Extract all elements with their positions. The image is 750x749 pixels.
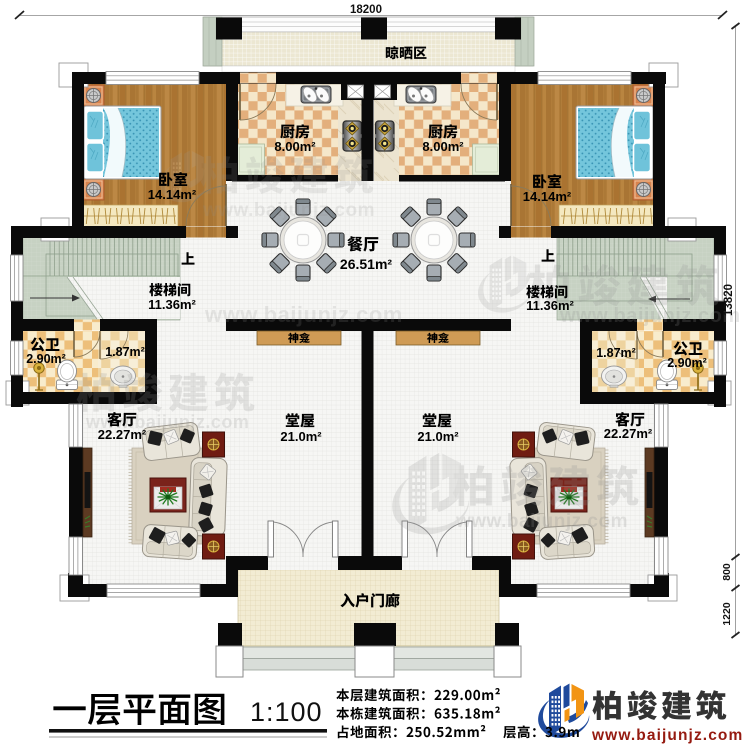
svg-text:14.14m²: 14.14m² bbox=[148, 187, 197, 202]
svg-text:13820: 13820 bbox=[723, 284, 735, 316]
svg-text:21.0m²: 21.0m² bbox=[280, 429, 322, 444]
svg-text:www.baijunjz.com: www.baijunjz.com bbox=[591, 727, 743, 744]
svg-text:18200: 18200 bbox=[350, 4, 382, 16]
svg-text:2.90m²: 2.90m² bbox=[667, 356, 707, 370]
svg-text:1220: 1220 bbox=[721, 602, 733, 626]
svg-text:www.baijunjz.com: www.baijunjz.com bbox=[204, 302, 403, 327]
svg-text:22.27m²: 22.27m² bbox=[604, 426, 653, 441]
svg-text:800: 800 bbox=[721, 563, 733, 581]
svg-text:1.87m²: 1.87m² bbox=[105, 345, 145, 359]
svg-text:14.14m²: 14.14m² bbox=[523, 189, 572, 204]
svg-text:11.36m²: 11.36m² bbox=[148, 297, 196, 312]
svg-text:1:100: 1:100 bbox=[250, 697, 323, 727]
svg-text:8.00m²: 8.00m² bbox=[422, 139, 464, 154]
svg-text:22.27m²: 22.27m² bbox=[98, 427, 147, 442]
svg-text:www.baijunjz.com: www.baijunjz.com bbox=[202, 200, 375, 221]
svg-text:www.baijunjz.com: www.baijunjz.com bbox=[559, 305, 741, 327]
svg-text:1.87m²: 1.87m² bbox=[596, 346, 636, 360]
svg-text:21.0m²: 21.0m² bbox=[417, 429, 459, 444]
svg-text:26.51m²: 26.51m² bbox=[340, 256, 392, 272]
svg-text:www.baijunjz.com: www.baijunjz.com bbox=[455, 511, 628, 532]
svg-text:2.90m²: 2.90m² bbox=[26, 352, 66, 366]
svg-text:8.00m²: 8.00m² bbox=[274, 139, 316, 154]
svg-text:11.36m²: 11.36m² bbox=[526, 298, 574, 313]
